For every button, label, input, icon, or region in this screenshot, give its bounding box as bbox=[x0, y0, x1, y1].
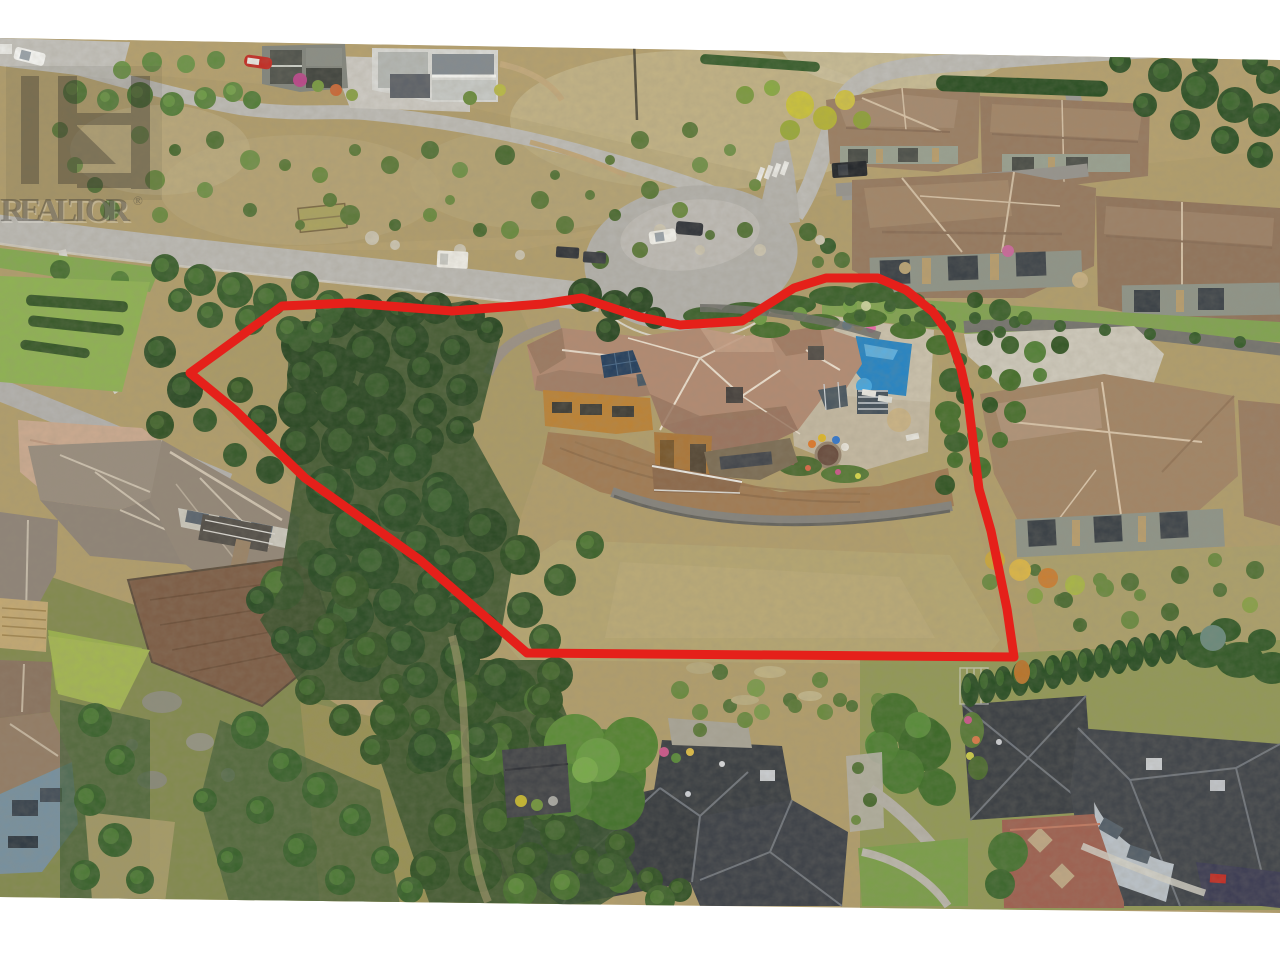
svg-text:®: ® bbox=[133, 193, 143, 208]
svg-text:REALTOR: REALTOR bbox=[0, 192, 130, 229]
